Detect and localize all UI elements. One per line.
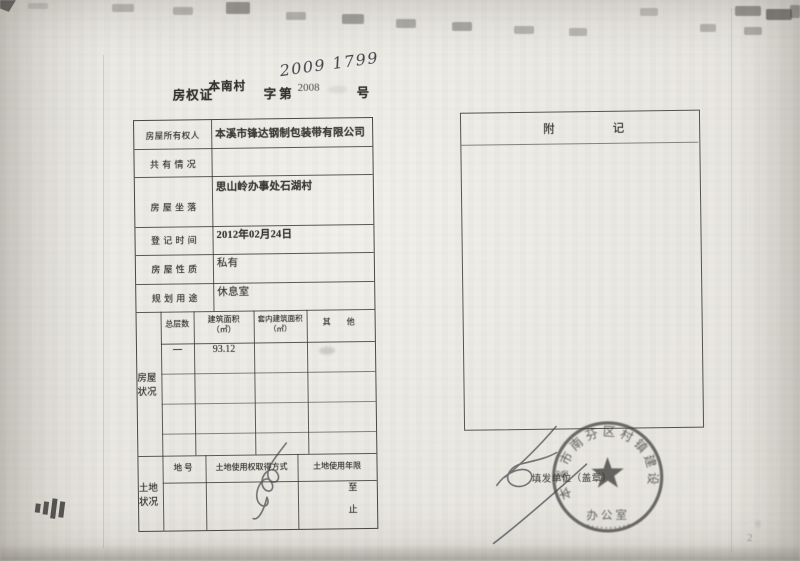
signature-tail bbox=[253, 497, 267, 519]
col-header-floor-area-unit: （㎡） bbox=[194, 325, 254, 336]
title-suffix: 号 bbox=[357, 82, 370, 101]
signature-acquisition-column bbox=[256, 443, 287, 506]
handwritten-signatures bbox=[234, 414, 616, 559]
scan-artifact bbox=[28, 3, 48, 9]
scan-artifact bbox=[640, 8, 658, 16]
col-header-inner-area: 套内建筑面积 bbox=[254, 314, 307, 325]
house-nature-value: 私有 bbox=[217, 253, 372, 270]
scan-artifact bbox=[569, 28, 587, 36]
coownership-value bbox=[215, 152, 370, 154]
scan-artifact bbox=[396, 19, 416, 28]
scan-artifact bbox=[735, 6, 761, 16]
remark-title: 附记 bbox=[543, 119, 682, 137]
archive-stamp-mark bbox=[58, 501, 65, 517]
col-header-inner-area-unit: （㎡） bbox=[254, 324, 307, 335]
scan-artifact bbox=[452, 22, 472, 31]
location-value: 思山岭办事处石湖村 bbox=[216, 177, 371, 194]
owner-name-value: 本溪市锋达钢制包装带有限公司 bbox=[215, 124, 370, 141]
total-floors-value: 一 bbox=[161, 346, 194, 356]
archive-stamp-mark bbox=[50, 498, 57, 518]
faded-print-artifact bbox=[328, 85, 348, 93]
scan-artifact bbox=[342, 14, 364, 24]
inner-area-value bbox=[254, 344, 307, 345]
title-region: 本南村 bbox=[208, 78, 246, 94]
handwritten-certificate-number: 2009 1799 bbox=[278, 48, 380, 80]
floor-area-value: 93.12 bbox=[194, 345, 254, 356]
row-label-planned-use: 规 划 用 途 bbox=[136, 291, 213, 305]
archive-stamp bbox=[31, 496, 68, 526]
col-header-total-floors: 总层数 bbox=[161, 319, 194, 329]
row-label-house-nature: 房 屋 性 质 bbox=[136, 262, 213, 276]
archive-stamp-mark bbox=[35, 503, 41, 513]
scan-artifact bbox=[286, 12, 306, 20]
col-header-land-number: 地号 bbox=[162, 462, 205, 473]
scan-artifact bbox=[226, 2, 250, 14]
scan-artifact bbox=[790, 5, 800, 18]
planned-use-value: 休息室 bbox=[217, 282, 372, 299]
remark-box: 附记 bbox=[460, 110, 704, 431]
certificate-sheet: 房权证 本南村 字第 2008 2009 1799 号 bbox=[0, 0, 800, 561]
scan-artifact bbox=[514, 26, 534, 34]
scan-bottom-edge bbox=[0, 544, 800, 561]
side-label-land-condition: 土地状况 bbox=[138, 456, 163, 531]
faint-mark bbox=[319, 346, 335, 354]
scan-artifact bbox=[173, 7, 193, 15]
table-line bbox=[134, 146, 372, 150]
row-label-reg-date: 登 记 时 间 bbox=[135, 233, 212, 247]
scan-artifact bbox=[766, 9, 792, 20]
archive-stamp-mark bbox=[43, 501, 50, 515]
table-line bbox=[137, 309, 375, 313]
scan-artifact bbox=[112, 4, 134, 12]
page-number: 2 bbox=[747, 532, 753, 544]
title-printed-number: 2008 bbox=[298, 82, 320, 94]
page-fold-line-right bbox=[731, 8, 732, 552]
scan-artifact bbox=[744, 27, 762, 35]
side-label-house-condition: 房屋状况 bbox=[137, 312, 163, 456]
title-zidi: 字第 bbox=[264, 83, 295, 102]
reg-date-value: 2012年02月24日 bbox=[216, 225, 371, 242]
row-label-owner: 房屋所有权人 bbox=[134, 129, 211, 142]
table-line bbox=[461, 142, 698, 146]
row-label-coownership: 共 有 情 况 bbox=[134, 157, 211, 171]
scanned-certificate-page: 房权证 本南村 字第 2008 2009 1799 号 bbox=[0, 0, 800, 561]
scan-artifact bbox=[700, 24, 716, 32]
row-label-location: 房 屋 坐 落 bbox=[135, 200, 212, 214]
faint-mark bbox=[755, 520, 761, 528]
col-header-other: 其 他 bbox=[307, 317, 375, 328]
page-fold-line-left bbox=[103, 55, 104, 548]
title-prefix: 房权证 bbox=[173, 84, 214, 104]
